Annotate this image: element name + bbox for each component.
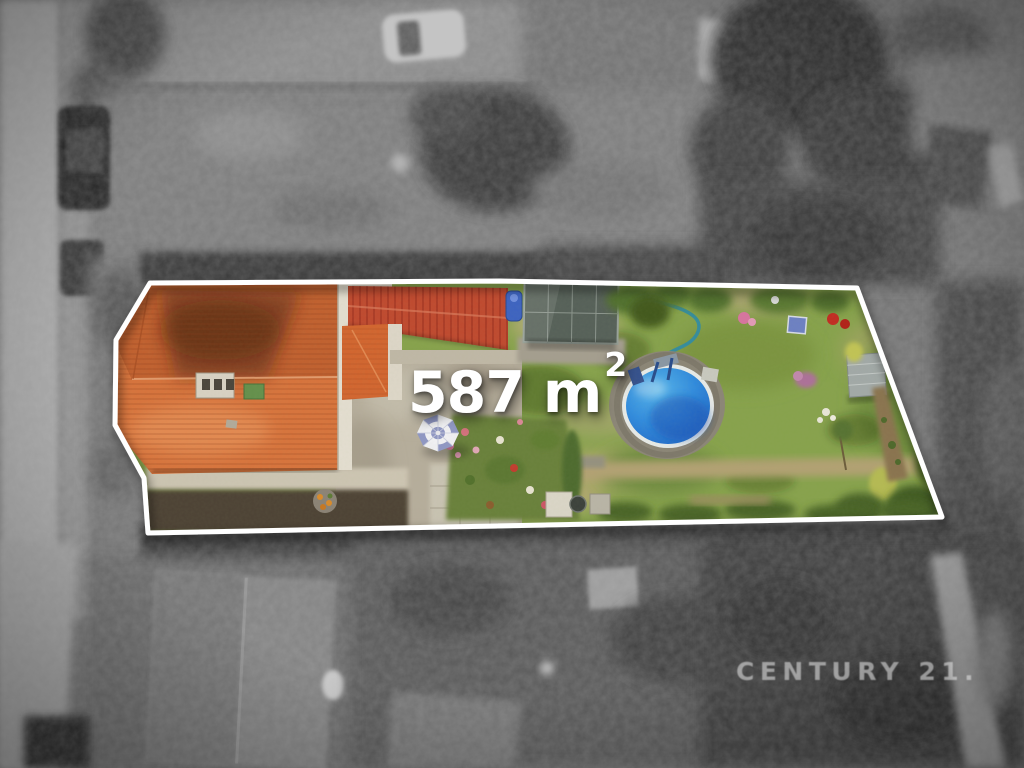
century21-watermark: CENTURY 21. xyxy=(736,658,979,686)
aerial-property-photo: 587 m2 CENTURY 21. xyxy=(0,0,1024,768)
area-label: 587 m2 xyxy=(408,364,627,422)
area-superscript: 2 xyxy=(604,345,627,384)
area-value: 587 m xyxy=(408,360,601,426)
watermark-text: CENTURY 21. xyxy=(736,657,979,686)
